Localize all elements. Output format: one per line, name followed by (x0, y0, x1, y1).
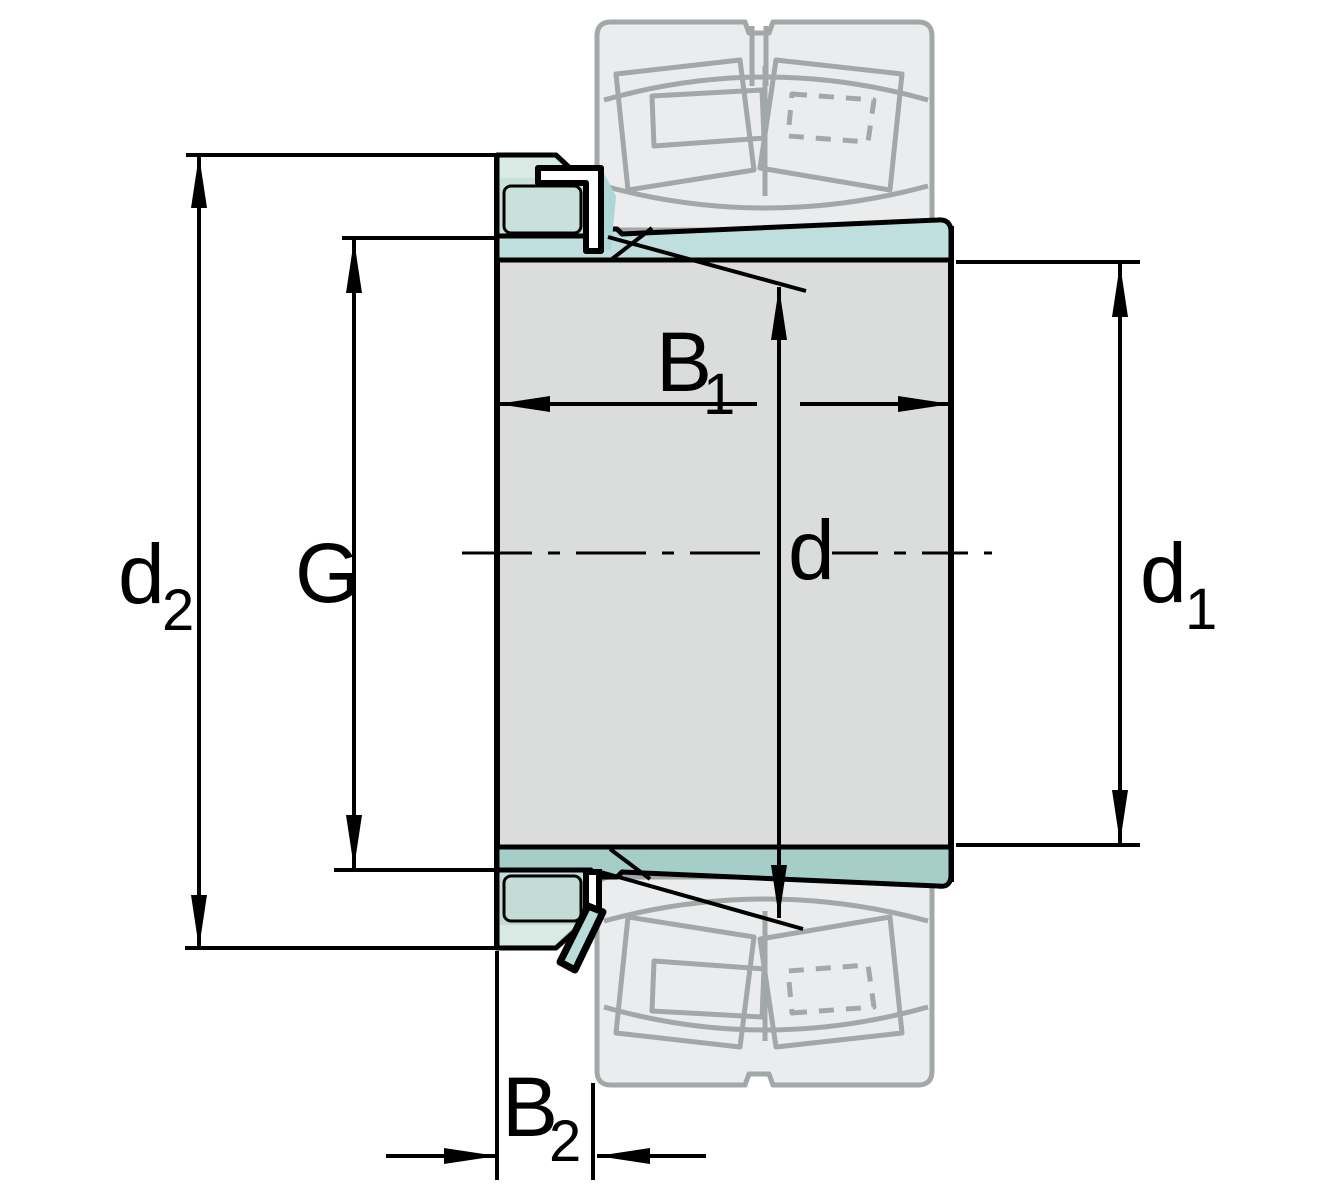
label-d2-sub: 2 (162, 578, 194, 643)
B2-arrow-left (444, 1148, 497, 1164)
label-d2-base: d (118, 527, 165, 621)
G-arrow-up (346, 240, 362, 293)
G-arrow-down (346, 815, 362, 868)
label-B2-sub: 2 (549, 1109, 581, 1174)
d1-arrow-down (1112, 790, 1128, 843)
label-d1-base: d (1140, 526, 1187, 620)
B2-arrow-right (597, 1148, 650, 1164)
label-B1-sub: 1 (703, 362, 735, 427)
d2-arrow-up (191, 155, 207, 208)
label-d1-sub: 1 (1185, 577, 1217, 642)
ghost-bearing-bottom (597, 877, 932, 1085)
d2-arrow-down (191, 895, 207, 948)
dimension-d1 (956, 262, 1140, 845)
technical-drawing-canvas: d 2 G B 1 d d 1 B 2 (0, 0, 1330, 1200)
label-d-base: d (788, 503, 835, 597)
d1-arrow-up (1112, 264, 1128, 317)
adapter-sleeve-diagram: d 2 G B 1 d d 1 B 2 (0, 0, 1330, 1200)
label-G-base: G (295, 526, 360, 620)
ghost-bearing-top (597, 22, 932, 230)
